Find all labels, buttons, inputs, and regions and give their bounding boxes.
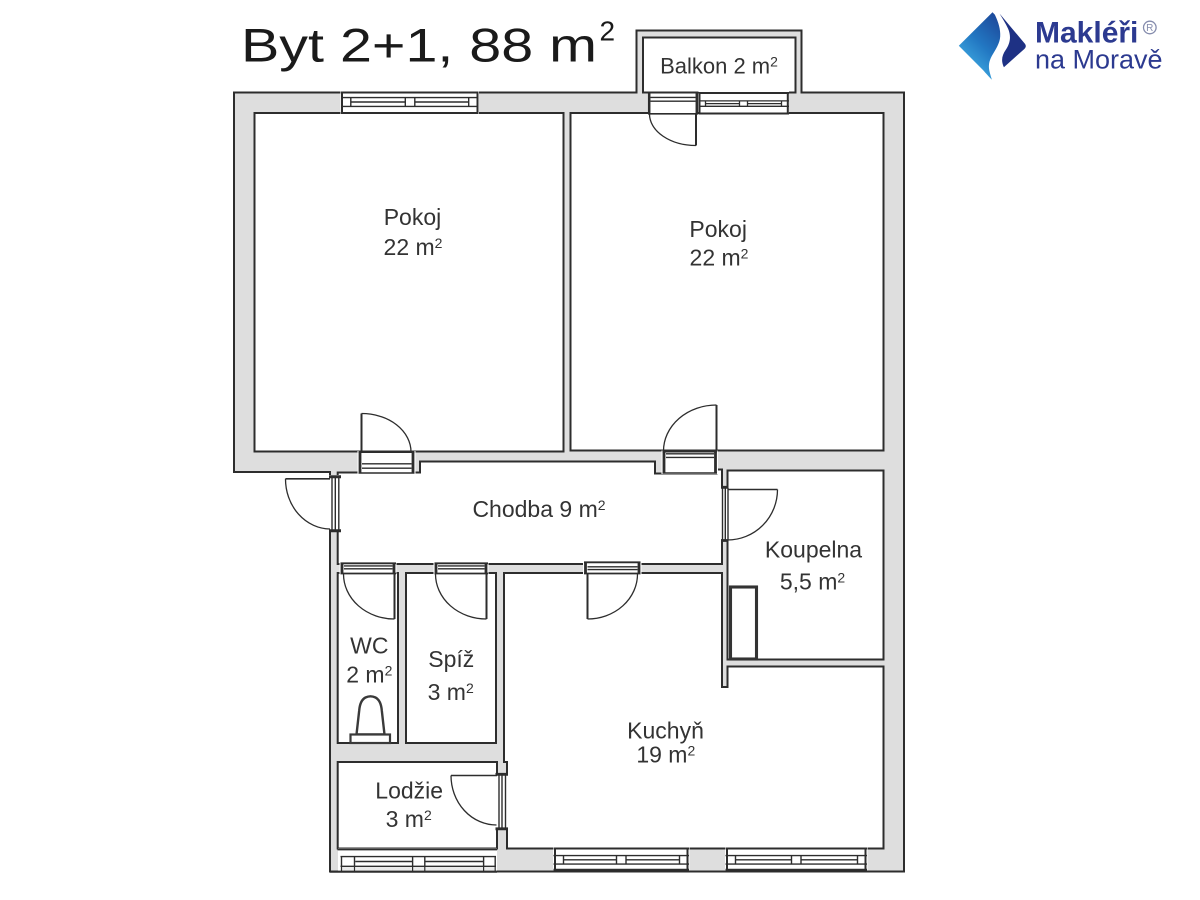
svg-text:3 m2: 3 m2 (386, 806, 432, 832)
svg-text:Koupelna: Koupelna (765, 537, 862, 563)
svg-text:2: 2 (600, 16, 616, 47)
svg-text:Pokoj: Pokoj (689, 216, 747, 242)
svg-text:Chodba 9 m2: Chodba 9 m2 (472, 496, 605, 522)
svg-text:22 m2: 22 m2 (690, 245, 749, 271)
svg-text:Pokoj: Pokoj (384, 204, 442, 230)
svg-text:2 m2: 2 m2 (346, 662, 392, 688)
svg-text:Lodžie: Lodžie (375, 778, 443, 804)
svg-text:3 m2: 3 m2 (428, 679, 474, 705)
svg-text:na Moravě: na Moravě (1035, 45, 1163, 75)
svg-text:Spíž: Spíž (428, 646, 474, 672)
svg-text:Byt 2+1, 88 m: Byt 2+1, 88 m (241, 19, 597, 72)
svg-text:22 m2: 22 m2 (384, 234, 443, 260)
svg-text:5,5 m2: 5,5 m2 (780, 568, 846, 594)
svg-text:R: R (1146, 23, 1153, 34)
svg-text:WC: WC (350, 632, 388, 658)
svg-text:Kuchyň: Kuchyň (627, 718, 704, 744)
svg-text:Balkon 2 m2: Balkon 2 m2 (660, 53, 778, 78)
svg-text:19 m2: 19 m2 (636, 742, 695, 768)
